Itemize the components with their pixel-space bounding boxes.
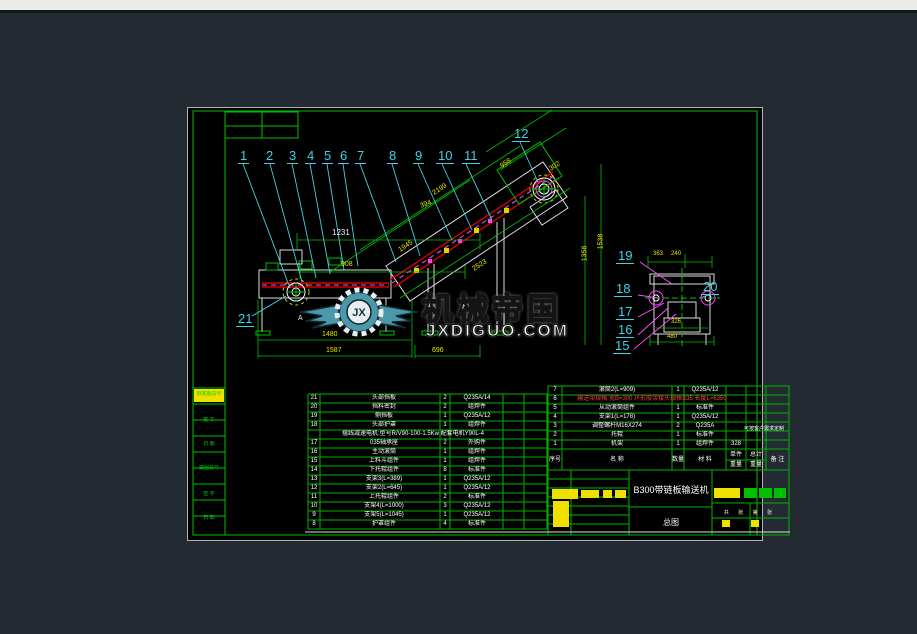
bom-header-weight: 重量 (726, 462, 746, 468)
dim-1587: 1587 (326, 347, 342, 354)
bom-header-remark: 备 注 (766, 457, 789, 463)
callout-9: 9 (413, 149, 424, 164)
strip-label-date2: 日 期 (193, 515, 225, 521)
table-row: 1机架1组焊件328 (548, 440, 789, 449)
bom-header-seq: 序号 (548, 457, 562, 463)
dim-480: 480 (667, 334, 677, 341)
callout-8: 8 (387, 149, 398, 164)
bom-remark-note: 可按客户需求定制 (744, 426, 790, 432)
dim-1358: 1358 (581, 246, 588, 262)
dim-326: 326 (671, 319, 681, 326)
dim-1538: 1538 (597, 234, 604, 250)
callout-5: 5 (322, 149, 333, 164)
strip-label-master: 底图总号 (193, 465, 225, 471)
callout-12: 12 (512, 127, 530, 142)
callout-16: 16 (616, 323, 634, 338)
table-row: 7滚筒2(L=909)1Q235A/12 (548, 386, 789, 395)
drawing-title: B300带链板输送机 (631, 483, 711, 496)
dim-908: 908 (341, 261, 353, 268)
table-row: 12支架2(L=645)1Q235A/12 (308, 484, 548, 493)
drawing-type: 总图 (631, 517, 711, 528)
table-row-belt-spec: 6输送带规格:宽B=300 环形胶带接头规格S35 长度L=6350 (548, 395, 789, 404)
callout-15: 15 (613, 339, 631, 354)
table-row: 10支架4(L=1000)3Q235A/12 (308, 502, 548, 511)
table-row: 18头部护罩1组焊件 (308, 421, 548, 430)
table-row: 20挡料密封2组焊件 (308, 403, 548, 412)
cad-canvas[interactable] (0, 0, 917, 634)
table-row: 17035轴承座2外购件 (308, 439, 548, 448)
strip-label-signature: 签 字 (193, 417, 225, 423)
dim-696: 696 (432, 347, 444, 354)
table-row: 15上料斗组件1组焊件 (308, 457, 548, 466)
table-row: 11上托辊组件2标准件 (308, 493, 548, 502)
table-row: 14下托辊组件8标准件 (308, 466, 548, 475)
table-row: 4支架1(L=178)1Q235A/12 (548, 413, 789, 422)
table-row: 13支架3(L=389)1Q235A/12 (308, 475, 548, 484)
callout-21: 21 (236, 312, 254, 327)
table-row: 5从动滚筒组件1标准件 (548, 404, 789, 413)
table-row: 19侧挡板1Q235A/12 (308, 412, 548, 421)
cad-application: { "callouts": ["1","2","3","4","5","6","… (0, 0, 917, 634)
bom-header-unit-weight: 单件 (726, 452, 746, 458)
callout-7: 7 (355, 149, 366, 164)
callout-6: 6 (338, 149, 349, 164)
table-row: 9支架5(L=1045)1Q235A/12 (308, 511, 548, 520)
sheet-pages: 共 张 第 张 (714, 509, 786, 516)
bom-header-name: 名 称 (562, 457, 672, 463)
bom-header-qty: 数量 (672, 457, 684, 463)
table-row: 16主动滚筒1组焊件 (308, 448, 548, 457)
table-row: 8护罩组件4标准件 (308, 520, 548, 529)
callout-18: 18 (614, 282, 632, 297)
dim-1480: 1480 (322, 331, 338, 338)
callout-3: 3 (287, 149, 298, 164)
bom-header-weight2: 重量 (746, 462, 766, 468)
callout-17: 17 (616, 305, 634, 320)
dim-240: 240 (671, 251, 681, 258)
view-label-a: A (298, 315, 303, 322)
callout-1: 1 (238, 149, 249, 164)
callout-10: 10 (436, 149, 454, 164)
bom-header-material: 材 料 (684, 457, 726, 463)
table-row-motor-spec: 摆线减速电机:型号R/V90-100-1.5Kw 配套电机Y90L-4 (308, 430, 548, 439)
strip-label-date: 日 期 (193, 441, 225, 447)
strip-label-signature2: 签 字 (193, 491, 225, 497)
callout-19: 19 (616, 249, 634, 264)
callout-4: 4 (305, 149, 316, 164)
table-row: 21头部挡板2Q235A/14 (308, 394, 548, 403)
table-row: 2托辊1标准件 (548, 431, 789, 440)
callout-2: 2 (264, 149, 275, 164)
dim-1231: 1231 (332, 229, 350, 236)
callout-20: 20 (701, 280, 719, 295)
strip-label-old-master: 旧底图总号 (193, 391, 225, 397)
dim-363: 363 (653, 251, 663, 258)
bom-header-total-weight: 总计 (746, 452, 766, 458)
callout-11: 11 (462, 149, 480, 164)
